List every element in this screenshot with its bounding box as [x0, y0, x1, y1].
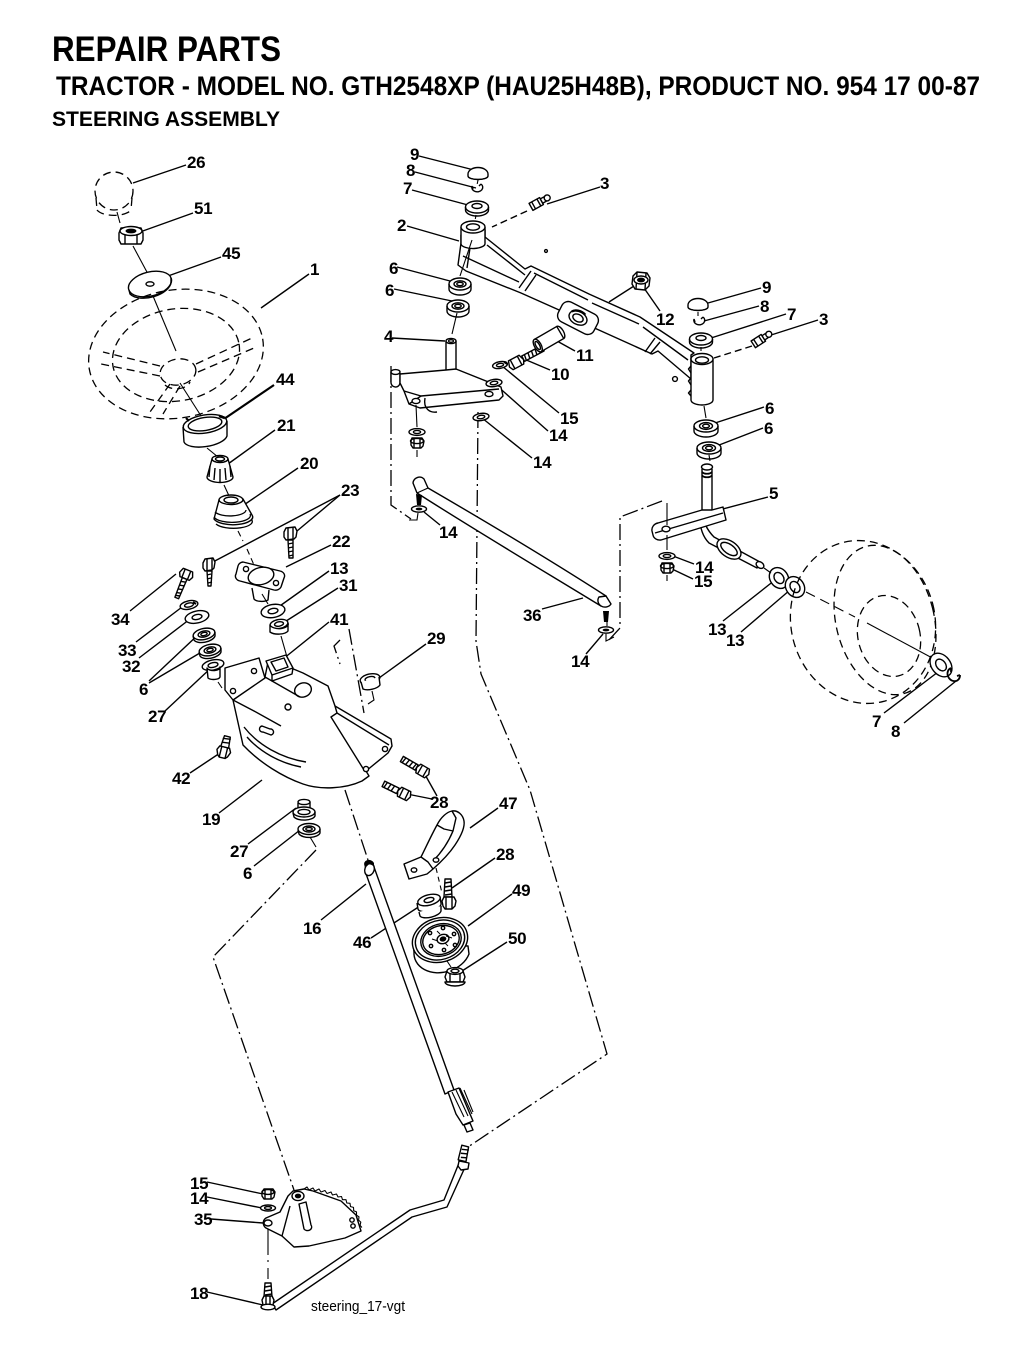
svg-text:STEERING ASSEMBLY: STEERING ASSEMBLY	[52, 108, 280, 131]
svg-text:22: 22	[332, 532, 350, 551]
svg-text:13: 13	[726, 631, 744, 650]
svg-text:42: 42	[172, 769, 190, 788]
svg-text:TRACTOR - MODEL NO. GTH2548XP: TRACTOR - MODEL NO. GTH2548XP (HAU25H48B…	[56, 71, 980, 101]
svg-text:7: 7	[872, 712, 881, 731]
svg-text:6: 6	[243, 864, 252, 883]
svg-text:9: 9	[762, 278, 771, 297]
svg-text:15: 15	[694, 572, 712, 591]
svg-text:20: 20	[300, 454, 318, 473]
svg-text:14: 14	[190, 1189, 209, 1208]
svg-text:45: 45	[222, 244, 240, 263]
svg-text:27: 27	[230, 842, 248, 861]
svg-text:6: 6	[765, 399, 774, 418]
svg-text:REPAIR PARTS: REPAIR PARTS	[52, 30, 281, 69]
svg-text:7: 7	[787, 305, 796, 324]
svg-text:41: 41	[330, 610, 348, 629]
svg-text:14: 14	[571, 652, 590, 671]
svg-text:3: 3	[819, 310, 828, 329]
svg-text:28: 28	[496, 845, 514, 864]
svg-text:46: 46	[353, 933, 371, 952]
svg-text:3: 3	[600, 174, 609, 193]
svg-text:8: 8	[891, 722, 900, 741]
svg-text:31: 31	[339, 576, 357, 595]
svg-text:6: 6	[139, 680, 148, 699]
svg-text:49: 49	[512, 881, 530, 900]
svg-text:8: 8	[406, 161, 415, 180]
svg-text:36: 36	[523, 606, 541, 625]
svg-text:13: 13	[708, 620, 726, 639]
svg-text:7: 7	[403, 179, 412, 198]
svg-text:5: 5	[769, 484, 778, 503]
svg-text:12: 12	[656, 310, 674, 329]
svg-text:6: 6	[389, 259, 398, 278]
svg-text:23: 23	[341, 481, 359, 500]
svg-text:21: 21	[277, 416, 295, 435]
svg-text:32: 32	[122, 657, 140, 676]
svg-text:4: 4	[384, 327, 394, 346]
svg-text:11: 11	[576, 346, 593, 365]
svg-text:14: 14	[439, 523, 458, 542]
svg-text:14: 14	[549, 426, 568, 445]
svg-text:18: 18	[190, 1284, 208, 1303]
svg-text:8: 8	[760, 297, 769, 316]
svg-text:44: 44	[276, 370, 295, 389]
svg-text:28: 28	[430, 793, 448, 812]
svg-text:51: 51	[194, 199, 212, 218]
svg-text:10: 10	[551, 365, 569, 384]
svg-text:50: 50	[508, 929, 526, 948]
svg-text:steering_17-vgt: steering_17-vgt	[311, 1298, 406, 1315]
svg-text:35: 35	[194, 1210, 212, 1229]
svg-text:2: 2	[397, 216, 406, 235]
svg-text:29: 29	[427, 629, 445, 648]
svg-text:47: 47	[499, 794, 517, 813]
svg-text:27: 27	[148, 707, 166, 726]
svg-text:6: 6	[764, 419, 773, 438]
svg-text:26: 26	[187, 153, 205, 172]
svg-text:34: 34	[111, 610, 130, 629]
svg-text:1: 1	[310, 260, 319, 279]
svg-text:6: 6	[385, 281, 394, 300]
svg-text:19: 19	[202, 810, 220, 829]
svg-text:16: 16	[303, 919, 321, 938]
svg-text:14: 14	[533, 453, 552, 472]
